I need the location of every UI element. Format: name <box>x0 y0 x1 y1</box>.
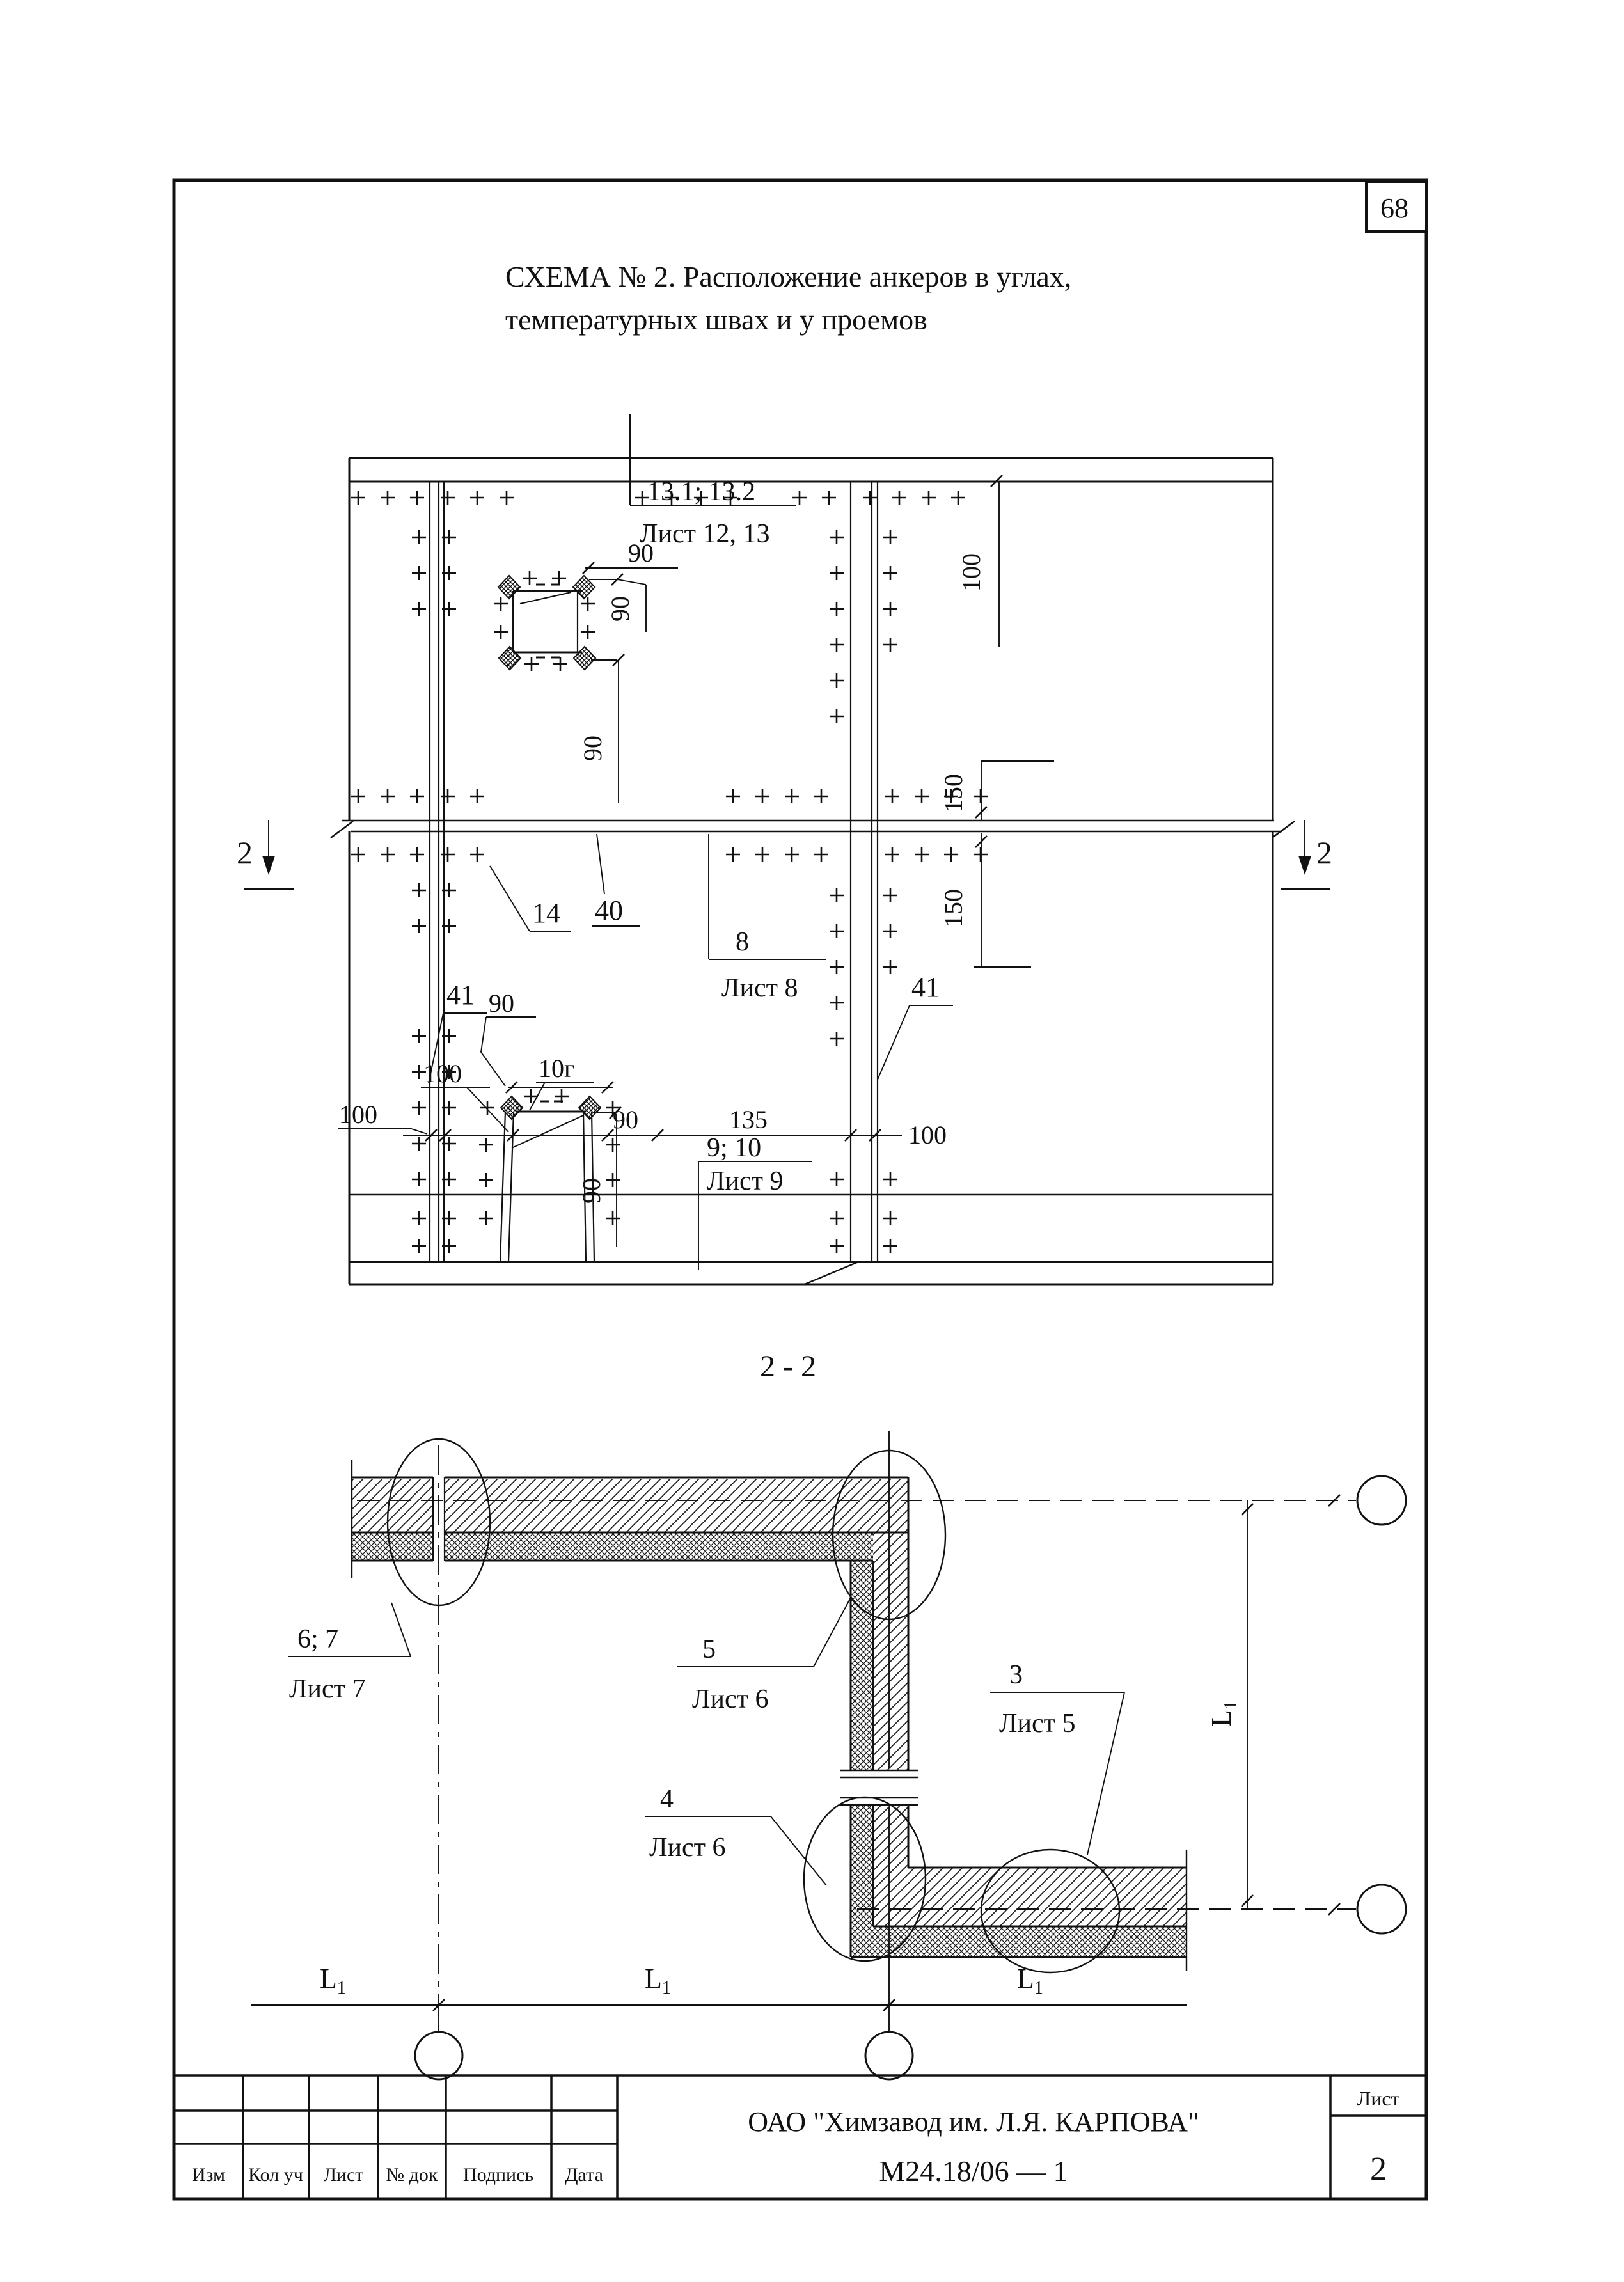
tb-sheet-label: Лист <box>1357 2087 1399 2110</box>
dim-90-mid: 90 <box>613 1105 638 1134</box>
callout-4-sheet-6: Лист 6 <box>649 1833 725 1862</box>
anchor-plan: 13.1; 13.2 Лист 12, 13 90 90 90 100 150 … <box>237 414 1332 1284</box>
tb-sheet-number: 2 <box>1370 2151 1387 2187</box>
tb-col-podpis: Подпись <box>463 2164 533 2185</box>
tb-col-dok: № док <box>386 2164 438 2185</box>
plan-labels: 13.1; 13.2 Лист 12, 13 90 90 90 100 150 … <box>237 477 1332 1204</box>
schema-title-line2: температурных швах и у проемов <box>505 303 927 336</box>
callout-6-7: 6; 7 <box>297 1625 338 1654</box>
anchor-cross-marks <box>351 491 988 1253</box>
tb-col-list: Лист <box>324 2164 364 2185</box>
tb-col-koluch: Кол уч <box>248 2164 303 2185</box>
section-mark-2-left: 2 <box>237 835 253 870</box>
plan-wall-lines <box>331 414 1295 1284</box>
dim-L1-a: L1 <box>320 1963 346 1998</box>
dim-100-right-top: 100 <box>957 553 986 592</box>
pos-41-right: 41 <box>911 972 940 1003</box>
section-2-2: 2 - 2 <box>251 1350 1406 2079</box>
title-block-text: Изм Кол уч Лист № док Подпись Дата ОАО "… <box>192 2087 1400 2187</box>
title-block: Изм Кол уч Лист № док Подпись Дата ОАО "… <box>174 2075 1426 2198</box>
page-number: 68 <box>1380 193 1408 224</box>
dim-L1-c: L1 <box>1017 1963 1043 1998</box>
detail-ref-13: 13.1; 13.2 <box>647 477 755 507</box>
dim-135: 135 <box>729 1105 768 1134</box>
dim-L1-vertical: L1 <box>1206 1701 1241 1727</box>
callout-5-sheet-6: Лист 6 <box>692 1685 768 1714</box>
pos-14: 14 <box>532 897 560 929</box>
upper-opening <box>513 591 582 652</box>
dim-100-left-a: 100 <box>339 1100 377 1129</box>
dim-90-door-side: 90 <box>577 1178 606 1204</box>
sheet-ref-12-13: Лист 12, 13 <box>640 519 769 549</box>
section-label: 2 - 2 <box>760 1350 816 1383</box>
plan-dimension-lines <box>244 481 1330 1270</box>
dim-100-right-joint: 100 <box>908 1121 947 1149</box>
schema-title: СХЕМА № 2. Расположение анкеров в углах,… <box>505 260 1071 336</box>
callout-3-sheet-5: Лист 5 <box>999 1709 1075 1738</box>
section-mark-2-right: 2 <box>1316 835 1332 870</box>
sheet-ref-8: Лист 8 <box>721 973 798 1003</box>
pos-10g: 10г <box>539 1054 574 1083</box>
dim-90-right-upper: 90 <box>606 596 635 622</box>
plan-dimension-ticks <box>425 475 1002 1141</box>
callout-3: 3 <box>1009 1660 1023 1690</box>
dim-90-door-top: 90 <box>489 989 514 1018</box>
dim-90-right-lower: 90 <box>578 736 607 761</box>
tb-col-data: Дата <box>565 2164 603 2185</box>
pos-41-left: 41 <box>446 979 475 1011</box>
callout-sheet-7: Лист 7 <box>289 1674 365 1704</box>
drawing-sheet: 68 СХЕМА № 2. Расположение анкеров в угл… <box>0 0 1624 2282</box>
tb-col-izm: Изм <box>192 2164 225 2185</box>
dim-100-left-b: 100 <box>423 1059 462 1088</box>
sheet-ref-9: Лист 9 <box>707 1167 783 1196</box>
dim-L1-b: L1 <box>645 1963 671 1998</box>
dim-150-above-joint: 150 <box>939 774 968 812</box>
pos-9-10: 9; 10 <box>707 1133 761 1163</box>
blueprint-canvas: 68 СХЕМА № 2. Расположение анкеров в угл… <box>0 0 1624 2282</box>
pos-8: 8 <box>736 927 749 957</box>
tb-organization: ОАО "Химзавод им. Л.Я. КАРПОВА" <box>748 2106 1199 2137</box>
sheet-frame: 68 <box>174 180 1426 2199</box>
dim-150-below-joint: 150 <box>939 889 968 927</box>
callout-5: 5 <box>702 1635 716 1664</box>
schema-title-line1: СХЕМА № 2. Расположение анкеров в углах, <box>505 260 1071 293</box>
section-marker-arrows <box>262 856 1311 875</box>
tb-document-number: М24.18/06 — 1 <box>879 2155 1068 2187</box>
pos-40: 40 <box>595 895 623 926</box>
anchor-symbols <box>498 576 601 1119</box>
dim-90-top: 90 <box>628 539 654 567</box>
callout-4: 4 <box>660 1784 674 1814</box>
